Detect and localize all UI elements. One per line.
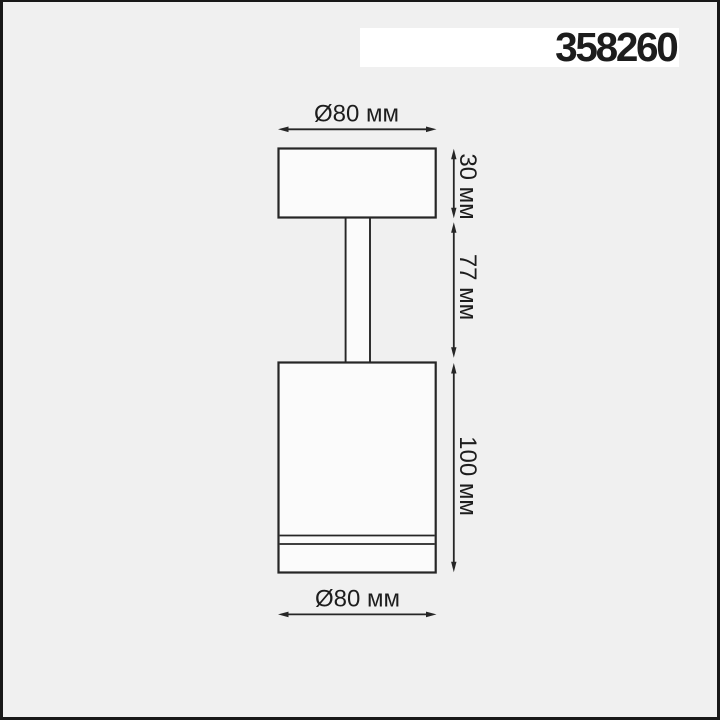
svg-text:358260: 358260 xyxy=(555,24,677,70)
svg-text:77 мм: 77 мм xyxy=(454,254,481,320)
svg-text:30 мм: 30 мм xyxy=(454,153,481,219)
svg-text:Ø80 мм: Ø80 мм xyxy=(315,586,400,613)
svg-text:Ø80 мм: Ø80 мм xyxy=(314,101,399,128)
svg-text:100 мм: 100 мм xyxy=(454,436,481,516)
